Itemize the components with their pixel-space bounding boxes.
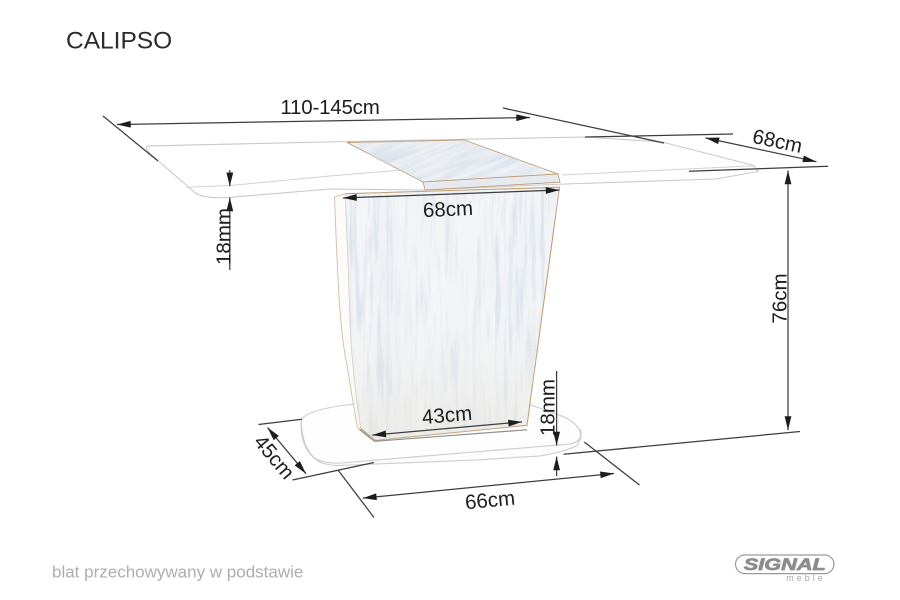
svg-text:43cm: 43cm (421, 402, 473, 429)
svg-text:110-145cm: 110-145cm (280, 96, 379, 119)
svg-text:CALIPSO: CALIPSO (66, 28, 172, 55)
svg-text:66cm: 66cm (464, 487, 516, 515)
svg-text:SIGNAL: SIGNAL (744, 556, 826, 574)
svg-text:18mm: 18mm (537, 379, 560, 436)
svg-text:18mm: 18mm (213, 208, 236, 265)
svg-text:meble: meble (786, 573, 826, 583)
svg-text:68cm: 68cm (422, 197, 473, 222)
svg-text:blat przechowywany w podstawie: blat przechowywany w podstawie (52, 563, 303, 582)
svg-text:76cm: 76cm (769, 273, 792, 323)
